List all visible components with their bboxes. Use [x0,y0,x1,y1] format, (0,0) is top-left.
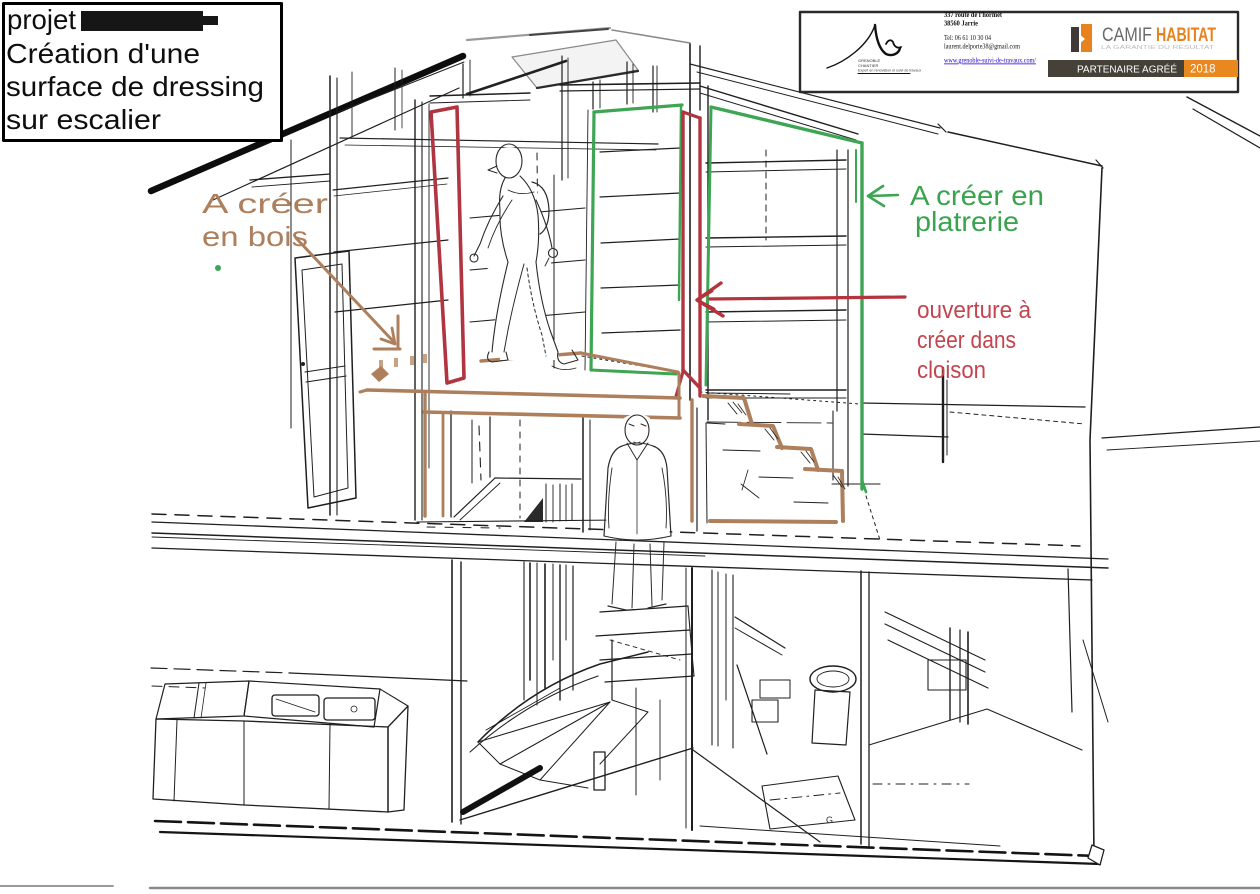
svg-text:cloison: cloison [917,357,986,384]
svg-text:CAMIF: CAMIF [1102,25,1152,46]
svg-text:Expert en rénovation et suivi: Expert en rénovation et suivi de travaux [858,69,921,73]
svg-text:laurent.delporte38@gmail.com: laurent.delporte38@gmail.com [944,42,1020,51]
svg-text:projet: projet [7,4,76,35]
svg-text:surface de dressing: surface de dressing [6,71,264,102]
svg-text:créer dans: créer dans [917,327,1016,354]
svg-text:38560 Jarrie: 38560 Jarrie [944,19,979,28]
svg-text:PARTENAIRE AGRÉÉ: PARTENAIRE AGRÉÉ [1077,63,1177,76]
svg-text:2018: 2018 [1190,64,1216,76]
svg-text:www.grenoble-suivi-de-travaux.: www.grenoble-suivi-de-travaux.com/ [944,56,1037,65]
svg-text:platrerie: platrerie [915,206,1019,237]
svg-text:CHANTIER: CHANTIER [858,63,879,68]
svg-text:A créer: A créer [202,188,328,219]
svg-text:HABITAT: HABITAT [1156,25,1216,46]
svg-text:G: G [826,815,833,825]
svg-text:sur escalier: sur escalier [6,104,161,135]
svg-text:LA GARANTIE DU RÉSULTAT: LA GARANTIE DU RÉSULTAT [1101,44,1214,51]
svg-text:Création d'une: Création d'une [6,38,200,69]
svg-text:ouverture à: ouverture à [917,297,1032,324]
svg-text:en bois: en bois [202,221,308,252]
